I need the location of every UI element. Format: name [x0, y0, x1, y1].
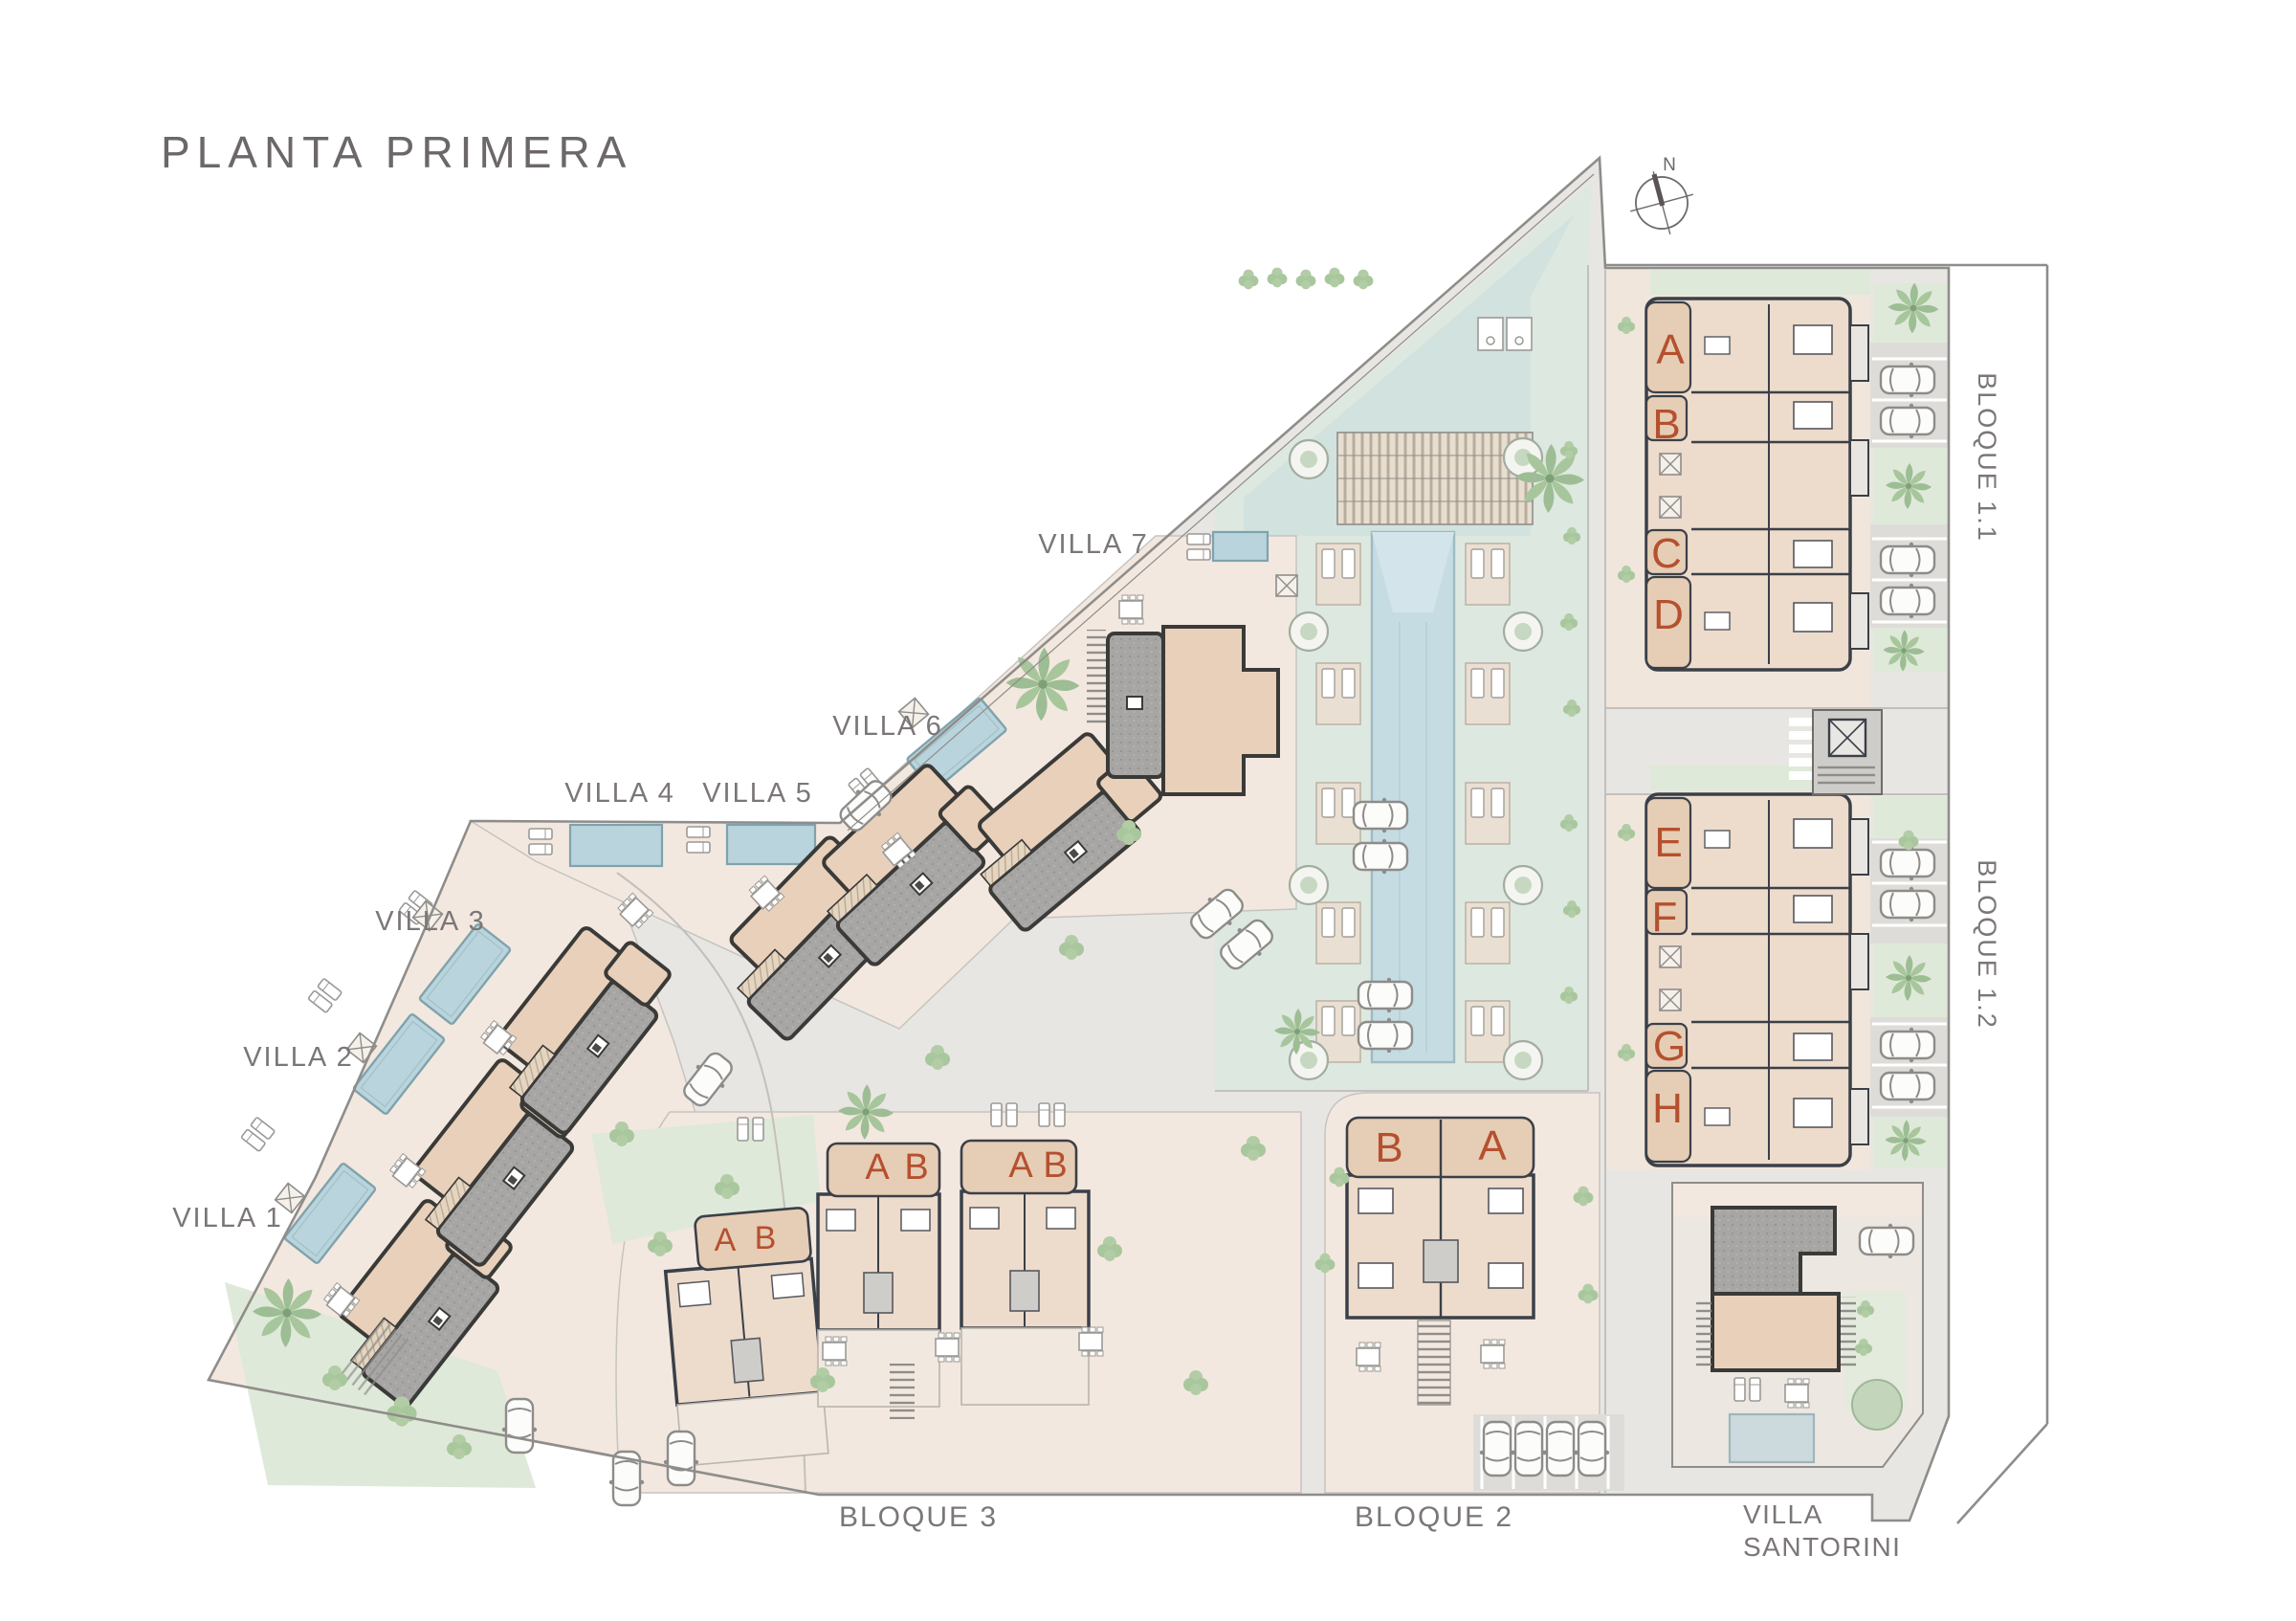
floor-plan-page: N PLANTA PRIMERA VILLA 1 VILLA 2 VILLA 3… [0, 0, 2296, 1621]
table-icon [1079, 1327, 1103, 1356]
table-icon [823, 1337, 847, 1366]
balcony [1850, 325, 1868, 381]
planter-icon [1504, 1041, 1542, 1079]
unit-letter-h: H [1652, 1085, 1683, 1132]
unit-letter-g: G [1653, 1023, 1686, 1070]
balcony [1850, 593, 1868, 649]
unit-letter-b: B [1652, 401, 1680, 448]
sun-deck-icon [1316, 902, 1360, 964]
villa7-pool [1213, 532, 1268, 561]
gym-equipment-icon [1507, 318, 1532, 350]
balcony [1850, 440, 1868, 496]
balcony [1850, 819, 1868, 875]
unit-letter-c: C [1651, 530, 1682, 577]
car-icon [1881, 363, 1934, 397]
bloque2-unit-a: A [1478, 1122, 1507, 1169]
lightwell-icon [1660, 454, 1681, 475]
table-icon [1119, 595, 1143, 624]
bloque3-b2-unit-a: A [865, 1147, 890, 1188]
sun-deck-icon [1466, 544, 1510, 605]
bloque3-b1-unit-b: B [755, 1220, 777, 1256]
car-icon [1543, 1422, 1578, 1476]
villa2-label: VILLA 2 [243, 1042, 354, 1073]
car-icon [1480, 1422, 1514, 1476]
page-title: PLANTA PRIMERA [161, 127, 632, 177]
pool-equipment-icon [1276, 575, 1297, 596]
villa4-label: VILLA 4 [564, 778, 675, 809]
stairs-icon [890, 1364, 915, 1419]
car-icon [1354, 839, 1407, 874]
car-icon [1881, 1069, 1934, 1103]
bloque3-b3-unit-b: B [1043, 1145, 1067, 1186]
planter-icon [1290, 440, 1328, 478]
bloque3-label: BLOQUE 3 [839, 1501, 998, 1533]
villa5-label: VILLA 5 [702, 778, 813, 809]
car-icon [664, 1432, 698, 1485]
bloque3-b2-unit-b: B [904, 1147, 928, 1188]
car-icon [1358, 1018, 1412, 1053]
lightwell-icon [1660, 946, 1681, 967]
sun-deck-icon [1466, 1001, 1510, 1062]
car-icon [1881, 584, 1934, 618]
bloque12-label: BLOQUE 1.2 [1973, 859, 2001, 1030]
unit-letter-f: F [1652, 894, 1678, 941]
sun-deck-icon [1466, 663, 1510, 724]
stairs-icon [1418, 1321, 1450, 1405]
stairs-icon [1087, 630, 1106, 725]
planter-icon [1504, 612, 1542, 651]
unit-letter-a: A [1656, 326, 1685, 373]
car-icon [1881, 846, 1934, 880]
balcony [1850, 934, 1868, 989]
block-connector [1813, 710, 1882, 794]
planter-icon [1290, 612, 1328, 651]
stairs-icon [1696, 1301, 1711, 1368]
lightwell-icon [1660, 989, 1681, 1010]
site-plan: N PLANTA PRIMERA VILLA 1 VILLA 2 VILLA 3… [0, 0, 2296, 1621]
villa4-pool [570, 825, 662, 866]
sun-deck-icon [1466, 783, 1510, 844]
car-icon [1354, 798, 1407, 833]
bloque2-parking [1473, 1414, 1624, 1491]
villa1-label: VILLA 1 [172, 1203, 283, 1233]
bush-icon [1852, 1380, 1902, 1430]
car-icon [1881, 1028, 1934, 1062]
table-icon [1357, 1343, 1380, 1371]
villa-santorini-label-line1: VILLA [1743, 1499, 1823, 1529]
car-icon [1512, 1422, 1546, 1476]
unit-letter-e: E [1654, 819, 1682, 866]
compass-north-label: N [1663, 155, 1676, 175]
villa3-label: VILLA 3 [375, 906, 486, 937]
garden-strip [1650, 270, 1870, 295]
unit-letter-d: D [1653, 591, 1684, 638]
lightwell-icon [1660, 497, 1681, 518]
sun-deck-icon [1466, 902, 1510, 964]
stairs-icon [1818, 762, 1875, 787]
sun-deck-icon [1316, 663, 1360, 724]
bloque2-unit-b: B [1375, 1124, 1402, 1171]
car-icon [1575, 1422, 1609, 1476]
bloque11-label: BLOQUE 1.1 [1973, 372, 2001, 543]
balcony [1850, 1089, 1868, 1144]
car-icon [1881, 887, 1934, 922]
car-icon [1358, 978, 1412, 1012]
car-icon [1860, 1224, 1913, 1258]
table-icon [936, 1333, 960, 1362]
car-icon [1881, 543, 1934, 577]
villa6-label: VILLA 6 [832, 711, 943, 742]
villa7-label: VILLA 7 [1038, 529, 1149, 560]
sun-deck-icon [1316, 544, 1360, 605]
car-icon [1881, 404, 1934, 438]
car-icon [502, 1399, 537, 1453]
bloque2-label: BLOQUE 2 [1355, 1501, 1513, 1533]
planter-icon [1504, 866, 1542, 904]
planter-icon [1290, 866, 1328, 904]
villa5-pool [727, 825, 815, 864]
table-icon [1785, 1379, 1809, 1408]
villa-santorini-label-line2: SANTORINI [1743, 1532, 1901, 1562]
gym-equipment-icon [1478, 318, 1503, 350]
table-icon [1481, 1340, 1505, 1368]
bloque3-b3-unit-a: A [1008, 1145, 1033, 1186]
bloque3-b1-unit-a: A [715, 1222, 737, 1258]
stairs-icon [1841, 1297, 1856, 1369]
villa-santorini-pool [1730, 1414, 1814, 1462]
